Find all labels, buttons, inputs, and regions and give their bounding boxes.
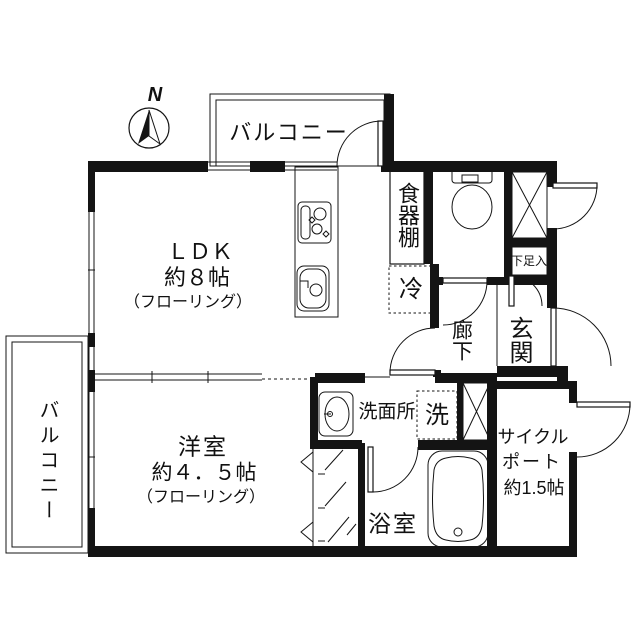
storage-door <box>553 183 597 229</box>
balcony-door <box>337 121 383 166</box>
bathroom-door <box>368 447 418 492</box>
washbasin-icon <box>319 392 353 436</box>
kitchen-counter <box>295 167 338 317</box>
compass-icon <box>129 108 169 148</box>
crossed-shaft-box <box>463 383 490 440</box>
floorplan-drawing <box>0 0 640 640</box>
front-door <box>551 308 611 366</box>
shoe-box <box>512 247 547 275</box>
fridge-box <box>389 266 434 313</box>
bathtub-icon <box>428 451 488 547</box>
crossed-storage-box <box>512 172 547 238</box>
dish-shelf-box <box>390 167 424 264</box>
doors <box>337 121 630 492</box>
washer-box <box>417 391 457 439</box>
windows <box>88 162 337 508</box>
balcony-left-outline <box>6 336 88 553</box>
toilet-icon <box>452 167 492 229</box>
stove-icon <box>298 202 331 243</box>
balcony-top-outline <box>210 94 390 166</box>
floorplan-canvas: N バルコニー ＬＤＫ 約８帖 （フローリング） 食器棚 冷 下足入 廊下 玄関… <box>0 0 640 640</box>
closet-folding-door <box>301 449 356 546</box>
sink-icon <box>297 266 329 311</box>
toilet-door <box>443 278 487 325</box>
ldk-hallway-door <box>390 328 435 375</box>
walls <box>88 94 577 557</box>
cycle-port-door <box>577 402 630 457</box>
